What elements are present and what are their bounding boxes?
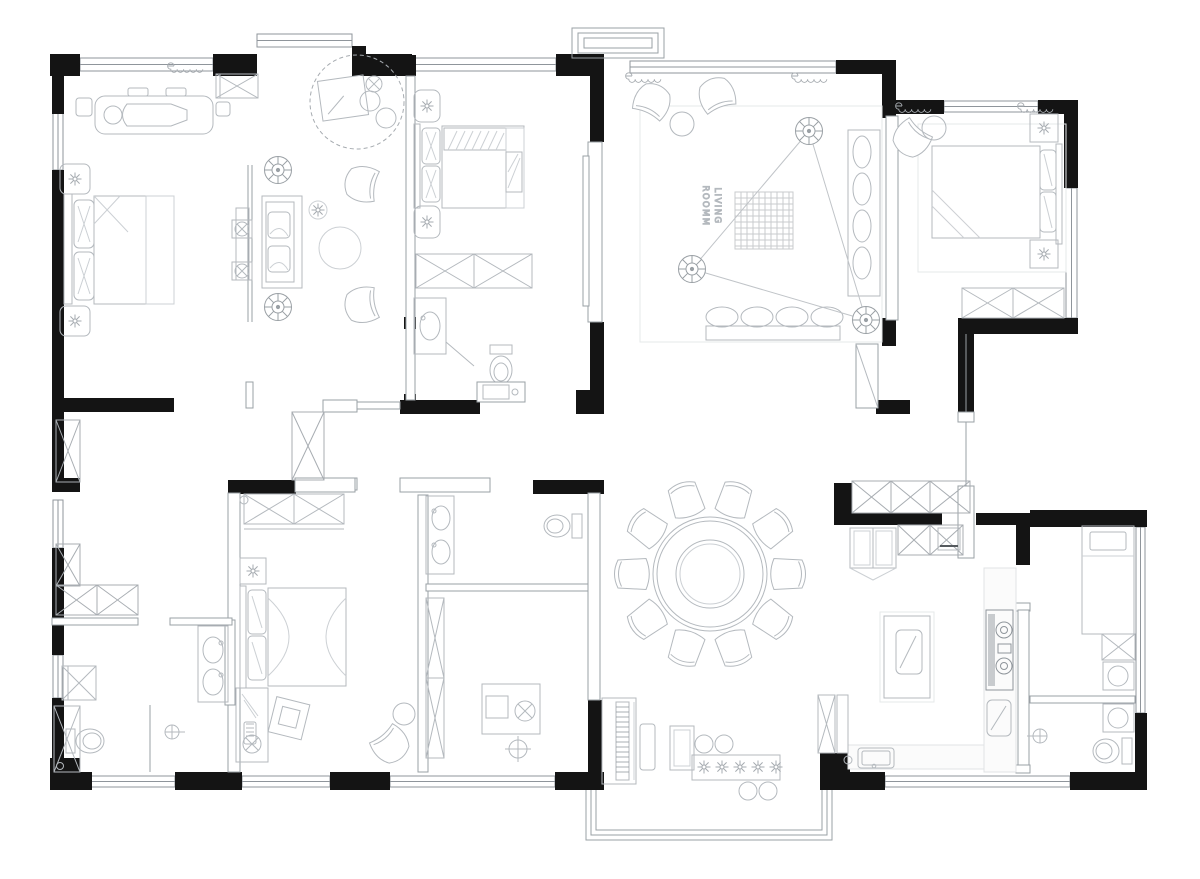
window-icon [1136,527,1145,713]
wardrobe-x-icon [244,494,344,529]
ottoman-icon [319,227,361,269]
toilet-icon [1093,738,1132,764]
window-icon [53,112,63,170]
room-bathroom-3 [426,496,582,574]
cabinet-x-icon [1102,634,1135,660]
room-bedroom-3 [887,103,1066,318]
washer-icon [1103,662,1134,690]
wardrobe-x-icon [292,412,324,480]
window-icon [242,776,330,787]
vanity-icon [198,626,228,702]
window-icon [90,776,175,787]
bench-sofa-icon [262,196,302,288]
room-living: LIVING ROOMM [626,73,882,408]
room-dressing [56,382,324,615]
floor-plan-canvas: LIVING ROOMM [0,0,1200,879]
desk-icon [482,684,540,734]
nightstand-icon [1030,114,1058,142]
toilet-icon [66,729,104,753]
planter-icon [692,735,783,800]
shower-icon [165,725,185,739]
dining-table-icon [653,517,767,631]
chaise-lounge-icon [76,88,230,134]
washer-icon [1103,704,1134,732]
window-icon [885,776,1070,787]
door-leaf [856,344,878,408]
chair-crosshair-icon [505,736,531,762]
vanity-icon [426,496,454,574]
nightstand-icon [1030,240,1058,268]
window-icon [630,61,836,73]
small-vanity [477,382,525,402]
armchair-icon [694,73,738,115]
toilet-icon [544,514,582,538]
cabinet-x-icon [56,585,138,615]
piano-icon [602,698,636,784]
ceiling-light-icon [515,701,535,721]
room-music-corner [602,695,848,800]
counter [984,568,1016,772]
window-icon [1066,188,1077,318]
side-table-icon [922,116,946,140]
room-bedroom-2 [414,90,532,288]
wardrobe-x-icon [416,254,532,288]
living-label-line2: ROOMM [700,186,710,227]
cabinet-x-icon [852,481,970,513]
shower-screen [446,342,474,366]
double-bed-icon [932,144,1062,244]
window-icon [944,101,1038,112]
floor-plan: LIVING ROOMM [0,0,1200,879]
nightstand-icon [414,90,440,122]
desk-icon [236,688,268,762]
ceiling-light-icon [265,157,292,184]
tv-console-icon [232,208,252,280]
nightstand-icon [414,206,440,238]
nightstand-icon [60,164,90,194]
living-label-line1: LIVING [712,188,722,225]
side-table-icon [393,703,415,725]
room-bedroom-4 [236,494,415,769]
double-bed-icon [414,124,524,208]
room-bathroom-2 [414,298,525,402]
window-icon [390,776,555,787]
rug-icon [735,192,793,249]
nightstand-icon [60,306,90,336]
side-table-icon [670,112,694,136]
washer-icon [62,666,96,700]
cushion-bench-icon [706,307,843,340]
armchair-icon [630,78,675,122]
piano-bench-icon [640,724,655,770]
room-utility [1027,526,1135,764]
prep-sink-icon [844,745,984,769]
ceiling-light-icon [796,118,823,145]
window-icon [53,500,63,548]
partitions [52,76,1135,773]
side-table [670,726,694,770]
room-label-living: LIVING ROOMM [700,186,722,227]
light-wiring [692,131,866,320]
lamp-cabinet-icon [240,558,266,584]
bay-window [586,790,832,840]
toilet-icon [490,345,512,384]
room-master-bathroom [54,626,228,772]
room-master-bedroom [60,63,258,336]
entry-porch [572,28,664,58]
laptop-table-icon [268,697,310,740]
double-bed-icon [64,194,174,304]
fridge-icon [850,528,896,580]
entry-cabinet [216,74,258,98]
armchair-icon [368,722,415,769]
ceiling-light-icon [853,307,880,334]
window-icon [257,34,352,47]
room-dining [615,478,806,669]
armchair-icon [342,164,380,204]
door-leaf [246,382,253,408]
armchair-icon [342,285,380,325]
cabinet-x-icon [818,695,848,753]
ceiling-light-icon [679,256,706,283]
sink-icon [414,298,446,354]
window-icon [80,58,213,71]
double-bed-icon [240,586,346,688]
room-study [426,598,540,762]
sofa-icon [848,130,880,296]
island-icon [880,612,934,702]
shower-icon [1027,729,1047,743]
wardrobe-x-icon [962,288,1064,318]
flower-stand-icon [309,201,327,219]
single-bed-icon [1082,526,1134,634]
floor-outline [640,106,882,342]
wardrobe-x-icon [426,598,444,758]
window-icon [412,58,556,71]
ceiling-light-icon [265,294,292,321]
dining-chairs [615,478,806,669]
